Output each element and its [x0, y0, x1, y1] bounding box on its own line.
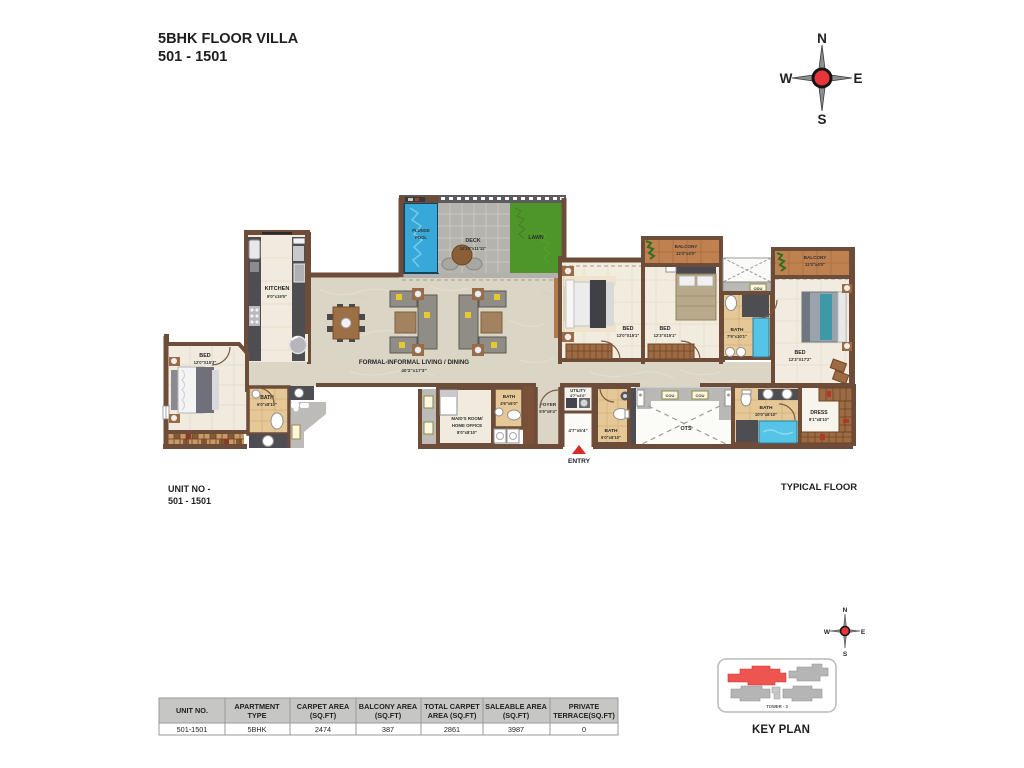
svg-text:501 - 1501: 501 - 1501 [168, 496, 211, 506]
svg-text:12'3"X15'1": 12'3"X15'1" [654, 333, 677, 338]
svg-text:BATH: BATH [731, 327, 745, 333]
svg-text:APARTMENT: APARTMENT [234, 702, 280, 711]
svg-text:W: W [780, 71, 793, 86]
svg-text:KEY PLAN: KEY PLAN [752, 724, 810, 736]
svg-text:POOL: POOL [415, 235, 427, 240]
svg-text:24'10"x11'11": 24'10"x11'11" [460, 246, 486, 251]
svg-text:(SQ.FT): (SQ.FT) [503, 711, 530, 720]
svg-text:12'0"X15'3": 12'0"X15'3" [194, 360, 217, 365]
svg-text:OTS: OTS [680, 426, 691, 432]
svg-text:(SQ.FT): (SQ.FT) [310, 711, 337, 720]
svg-text:40'2"x17'3": 40'2"x17'3" [401, 368, 427, 374]
svg-text:501 - 1501: 501 - 1501 [158, 49, 227, 65]
svg-text:KITCHEN: KITCHEN [265, 286, 290, 292]
svg-text:3987: 3987 [508, 725, 524, 734]
svg-text:MAID'S ROOM/: MAID'S ROOM/ [451, 416, 483, 421]
svg-text:BATH: BATH [760, 405, 774, 411]
svg-text:BED: BED [199, 353, 210, 359]
svg-text:BALCONY: BALCONY [804, 255, 827, 260]
svg-text:2861: 2861 [444, 725, 460, 734]
svg-text:LAWN: LAWN [528, 235, 544, 241]
svg-text:0: 0 [582, 725, 586, 734]
svg-text:DECK: DECK [465, 238, 480, 244]
svg-text:BED: BED [623, 326, 634, 332]
svg-text:PLUNGE: PLUNGE [412, 228, 430, 233]
svg-text:BALCONY: BALCONY [675, 244, 698, 249]
svg-text:AREA (SQ.FT): AREA (SQ.FT) [428, 711, 477, 720]
svg-text:4'7"x4'0": 4'7"x4'0" [570, 393, 587, 398]
svg-text:BATH: BATH [503, 394, 516, 399]
svg-text:5BHK: 5BHK [247, 725, 266, 734]
svg-text:BALCONY AREA: BALCONY AREA [359, 702, 418, 711]
svg-text:8'0"x8'10": 8'0"x8'10" [457, 430, 477, 435]
svg-text:BED: BED [660, 326, 671, 332]
svg-text:N: N [817, 31, 827, 46]
svg-text:TOWER - 3: TOWER - 3 [766, 704, 788, 709]
svg-text:501-1501: 501-1501 [177, 725, 208, 734]
svg-text:FOYER: FOYER [540, 402, 557, 408]
svg-text:HOME OFFICE: HOME OFFICE [452, 423, 483, 428]
svg-text:12'3"x4'0": 12'3"x4'0" [805, 262, 825, 267]
svg-text:S: S [817, 112, 826, 127]
svg-text:TYPICAL FLOOR: TYPICAL FLOOR [781, 482, 857, 493]
svg-text:12'3"X17'2": 12'3"X17'2" [789, 357, 812, 362]
svg-text:E: E [861, 629, 866, 636]
svg-text:CARPET AREA: CARPET AREA [297, 702, 350, 711]
svg-text:BATH: BATH [605, 428, 619, 434]
svg-text:387: 387 [382, 725, 394, 734]
svg-text:PRIVATE: PRIVATE [569, 702, 600, 711]
svg-text:12'3"x4'0": 12'3"x4'0" [676, 251, 696, 256]
svg-text:TOTAL CARPET: TOTAL CARPET [424, 702, 480, 711]
svg-text:W: W [824, 629, 831, 636]
svg-text:5'9"x9'4": 5'9"x9'4" [539, 409, 557, 414]
svg-text:4'7"x5'4": 4'7"x5'4" [568, 428, 587, 433]
svg-text:S: S [843, 651, 848, 658]
svg-text:UNIT NO -: UNIT NO - [168, 484, 211, 494]
svg-text:7'9"x10'1": 7'9"x10'1" [727, 334, 747, 339]
svg-text:DRESS: DRESS [810, 410, 828, 416]
svg-text:TYPE: TYPE [247, 711, 266, 720]
svg-text:(SQ.FT): (SQ.FT) [375, 711, 402, 720]
svg-text:FORMAL-INFORMAL LIVING / DININ: FORMAL-INFORMAL LIVING / DINING [359, 359, 469, 366]
svg-text:E: E [853, 71, 862, 86]
svg-text:ODU: ODU [754, 286, 763, 291]
svg-text:COU: COU [666, 393, 675, 398]
svg-text:COU: COU [696, 393, 705, 398]
svg-text:ENTRY: ENTRY [568, 458, 591, 465]
svg-text:9'0"x19'5": 9'0"x19'5" [267, 294, 287, 299]
svg-text:5BHK FLOOR VILLA: 5BHK FLOOR VILLA [158, 31, 299, 47]
svg-text:UNIT NO.: UNIT NO. [176, 706, 208, 715]
svg-text:SALEABLE AREA: SALEABLE AREA [485, 702, 547, 711]
svg-text:N: N [843, 607, 848, 614]
svg-text:10'0"x8'10": 10'0"x8'10" [755, 412, 777, 417]
svg-text:TERRACE(SQ.FT): TERRACE(SQ.FT) [553, 711, 615, 720]
svg-text:BED: BED [795, 350, 806, 356]
svg-text:4'6"x6'0": 4'6"x6'0" [500, 401, 518, 406]
svg-text:2474: 2474 [315, 725, 331, 734]
svg-text:8'1"x8'10": 8'1"x8'10" [809, 417, 829, 422]
svg-text:6'0"x8'10": 6'0"x8'10" [601, 435, 621, 440]
svg-text:12'0"X15'1": 12'0"X15'1" [617, 333, 640, 338]
